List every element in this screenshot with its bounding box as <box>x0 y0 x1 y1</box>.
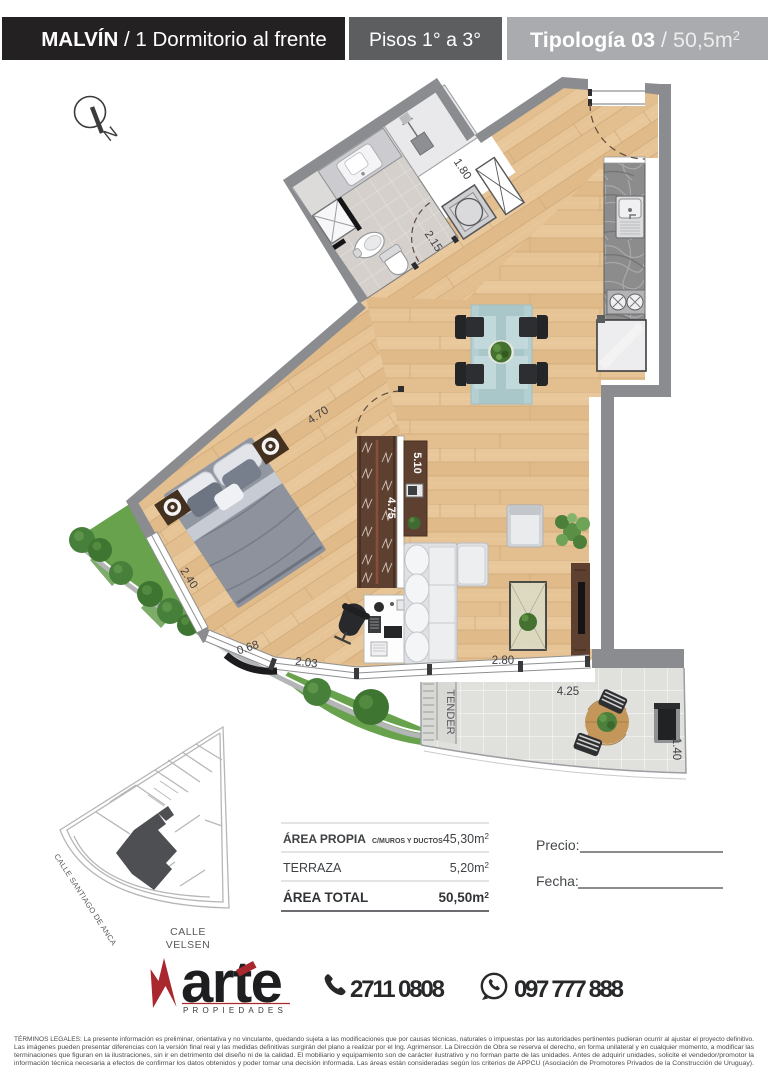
svg-text:Tipología 03 / 50,5m2: Tipología 03 / 50,5m2 <box>530 28 740 52</box>
svg-text:Pisos 1° a 3°: Pisos 1° a 3° <box>369 29 481 51</box>
svg-text:Las imágenes pueden presentar: Las imágenes pueden presentar diferencia… <box>14 1044 755 1051</box>
svg-text:50,50m2: 50,50m2 <box>438 890 489 905</box>
svg-text:TENDER: TENDER <box>444 689 456 734</box>
svg-text:Precio:: Precio: <box>536 837 580 853</box>
svg-text:1.40: 1.40 <box>670 738 682 760</box>
svg-text:097 777 888: 097 777 888 <box>514 976 624 1003</box>
svg-text:ÁREA PROPIA: ÁREA PROPIA <box>283 831 366 846</box>
svg-text:TÉRMINOS LEGALES: La presente: TÉRMINOS LEGALES: La presente informació… <box>14 1034 754 1043</box>
svg-text:2.80: 2.80 <box>492 655 514 667</box>
svg-text:C/MUROS Y DUCTOS: C/MUROS Y DUCTOS <box>372 838 443 845</box>
svg-text:5.10: 5.10 <box>411 452 423 473</box>
svg-text:MALVÍN / 1 Dormitorio al frent: MALVÍN / 1 Dormitorio al frente <box>41 28 327 51</box>
svg-text:2711 0808: 2711 0808 <box>350 976 445 1003</box>
svg-text:PROPIEDADES: PROPIEDADES <box>183 1006 287 1015</box>
svg-text:4.75: 4.75 <box>385 497 397 518</box>
svg-text:TERRAZA: TERRAZA <box>283 861 342 875</box>
svg-text:información técnica necesaria: información técnica necesaria a efectos … <box>14 1060 754 1067</box>
svg-text:45,30m2: 45,30m2 <box>443 832 490 846</box>
svg-text:Fecha:: Fecha: <box>536 873 579 889</box>
svg-text:CALLE: CALLE <box>170 926 206 938</box>
svg-text:terminaciones que figuran en l: terminaciones que figuran en la ilustrac… <box>14 1052 754 1059</box>
svg-text:ÁREA TOTAL: ÁREA TOTAL <box>283 890 368 905</box>
svg-text:4.25: 4.25 <box>557 686 579 698</box>
svg-text:5,20m2: 5,20m2 <box>450 861 490 875</box>
